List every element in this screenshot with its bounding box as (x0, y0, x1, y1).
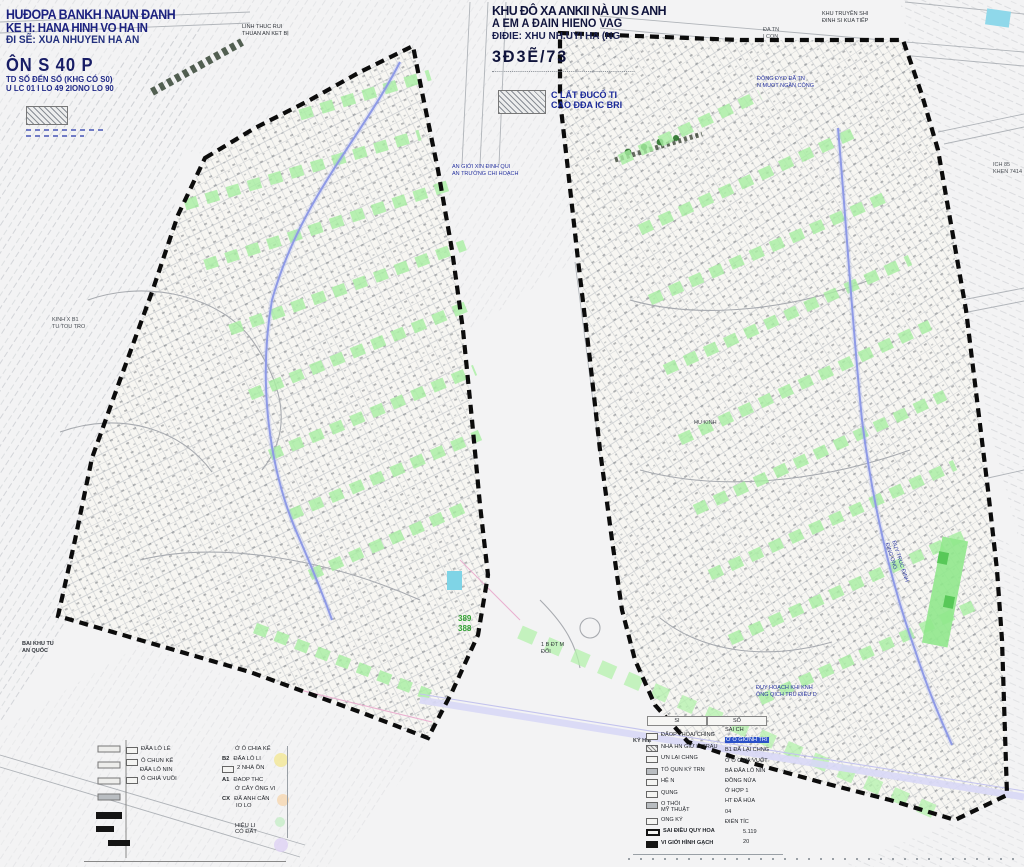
legend-item: B2 ĐẤA LÔ LI (222, 756, 284, 762)
parcel-swatch-icon (646, 791, 658, 798)
gray-swatch-icon (646, 802, 658, 809)
title-block-left: HUĐOPA BANKH NAUN ĐANH KE H: HANA HINH V… (6, 8, 328, 93)
parcel-swatch-icon (646, 779, 658, 786)
legend-item-subtext: IO LO (236, 803, 284, 809)
bottom-dotted-line (628, 858, 1024, 860)
parcel-swatch-icon (646, 818, 658, 825)
legend-right-col-b: SAI CH Ở Ô GIỚNH TRI B1 ĐẤ LẠI CHNG Ở Ô … (725, 727, 783, 849)
legend-left-col1: ĐẤA LÔ LẺ Ô CHUN KẾ ĐẤA LÔ NIN Ô CHIẢ VU… (126, 746, 218, 787)
legend-right-header: SI SỐ (647, 716, 767, 726)
parcel-swatch-icon (126, 747, 138, 754)
map-label-da-tn: ĐA TN I CON (763, 27, 779, 41)
map-label-boundary: AN GIỚI XIN ĐINH QUI AN TRƯỜNG CHI HOẠCH (452, 164, 518, 178)
highlighted-legend-item: Ở Ô GIỚNH TRI (725, 737, 769, 743)
title-left-line1: HUĐOPA BANKH NAUN ĐANH (6, 8, 328, 22)
map-label-bdtm: 1 B ĐT M ĐỐI (541, 642, 564, 656)
legend-item: HIỆU LI CÓ ĐẤT (222, 823, 284, 835)
title-center-line1: KHU ĐÔ XA ANKII NÀ UN S ANH (492, 4, 739, 18)
area-value: 5.119 (743, 829, 783, 835)
title-divider (492, 71, 635, 72)
map-label-ich: ICH 85 KHEN 7414 MS (993, 162, 1024, 176)
legend-item: Ở CÂY ỐNG VI (222, 786, 284, 792)
map-label-bai: BAI KHU TU AN QUỐC (22, 641, 54, 655)
hatch-swatch-icon (646, 745, 658, 752)
legend-right-table: SI SỐ KÝ HIỆ ĐẤOP THỔAI CHÌNG NHÀ HN GIỮ… (633, 714, 783, 855)
parcel-swatch-icon (222, 766, 234, 773)
title-center-line3: ĐIĐIE: XHU NH.UYI HA (NG (492, 31, 739, 43)
tree-icon (673, 135, 679, 141)
legend-item: 2 NHÀ ỒN (222, 765, 284, 773)
map-label-road-top: LINH THUC RUI THUAN AN KET BỊ (242, 24, 289, 38)
map-label-kinh: KINH X B1 TU TOU TRO (52, 317, 85, 331)
gray-swatch-icon (646, 768, 658, 775)
parcel-swatch-icon (646, 733, 658, 740)
legend-item: Ô CHUN KẾ (126, 758, 218, 766)
title-center-sheet-number: 3Đ3Ẽ/73 (492, 48, 739, 67)
planning-map-canvas: HUĐOPA BANKH NAUN ĐANH KE H: HANA HINH V… (0, 0, 1024, 867)
parcel-swatch-icon (126, 777, 138, 784)
black-swatch-icon (646, 841, 658, 848)
map-label-duy-hoach: ĐUY HOẠCH KHI KNH ÔNG QICH TRU ĐIỀU D (756, 685, 817, 699)
title-left-sheet-number: ÔN S 40 P (6, 56, 328, 75)
map-label-hu-kinh: HU KINH (694, 420, 717, 427)
hatch-note-line2: CAO ĐĐA IC BRI (551, 100, 622, 110)
title-left-note2: U LC 01 I LO 49 2IONO LO 90 (6, 84, 328, 93)
legend-left-col2: Ở Ô CHIA KẾ B2 ĐẤA LÔ LI 2 NHÀ ỒN A1 ĐAO… (222, 746, 288, 838)
blue-dash-sample (26, 129, 104, 131)
legend-left: ĐẤA LÔ LẺ Ô CHUN KẾ ĐẤA LÔ NIN Ô CHIẢ VU… (84, 736, 284, 862)
header-cell: SỐ (707, 716, 767, 726)
legend-item: Ô CHIẢ VUỒI (126, 776, 218, 784)
legend-item: A1 ĐAOP THC (222, 777, 284, 783)
hatch-swatch-icon (26, 106, 68, 125)
parcel-swatch-icon (126, 759, 138, 766)
hatch-note-line1: C LẤT ĐUCỐ TI (551, 90, 617, 100)
top-left-swatch (26, 106, 146, 137)
legend-left-underline (84, 861, 286, 862)
header-cell: SI (647, 716, 707, 726)
legend-right-col-a: ĐẤOP THỔAI CHÌNG NHÀ HN GIỮ LI TRAU ƯN L… (646, 732, 722, 851)
parcel-swatch-icon (646, 756, 658, 763)
title-block-center: KHU ĐÔ XA ANKII NÀ UN S ANH A EM A ĐAIN … (492, 4, 739, 72)
legend-item: CX ĐẤ ANH CÂN (222, 796, 284, 802)
boundary-swatch-icon (646, 829, 660, 836)
legend-item: Ở Ô CHIA KẾ (222, 746, 284, 752)
map-label-top-right: KHU TRUYỀN SHI ĐINH SI KUA TIẾP (822, 11, 868, 25)
legend-item-subtext: ĐẤA LÔ NIN (140, 767, 218, 773)
count-value: 20 (743, 839, 783, 845)
blue-dash-sample (26, 135, 84, 137)
legend-item: ĐẤA LÔ LẺ (126, 746, 218, 754)
lot-number-labels: 389 388 (458, 614, 471, 635)
hatch-legend-note: C LẤT ĐUCỐ TI CAO ĐĐA IC BRI (498, 90, 688, 114)
hatch-swatch-icon (498, 90, 546, 114)
map-label-dyke: ĐỘNG ĐYO ĐÃ TN N MUOT NGẦN CÔNG (757, 76, 814, 90)
